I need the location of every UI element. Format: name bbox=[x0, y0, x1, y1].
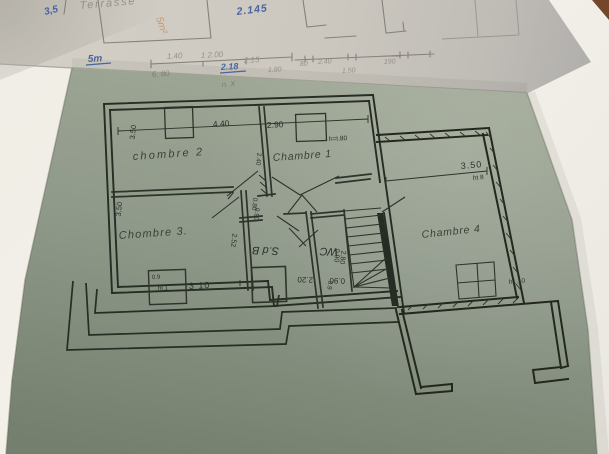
svg-text:80: 80 bbox=[300, 61, 308, 68]
svg-text:1.40: 1.40 bbox=[167, 51, 184, 61]
svg-text:190: 190 bbox=[384, 58, 396, 66]
svg-text:1 2.00: 1 2.00 bbox=[201, 50, 224, 60]
svg-text:ht 1: ht 1 bbox=[158, 285, 169, 292]
svg-text:6. 80: 6. 80 bbox=[152, 69, 171, 79]
svg-text:2.40: 2.40 bbox=[254, 152, 262, 166]
svg-text:3.50: 3.50 bbox=[128, 124, 138, 139]
svg-text:3.50: 3.50 bbox=[114, 201, 124, 216]
svg-text:2.20: 2.20 bbox=[297, 275, 313, 285]
svg-text:0.9: 0.9 bbox=[152, 275, 161, 281]
svg-text:S.d B: S.d B bbox=[252, 244, 279, 257]
svg-text:2.40: 2.40 bbox=[317, 58, 332, 66]
svg-text:0.9: 0.9 bbox=[325, 280, 333, 290]
svg-text:4.40: 4.40 bbox=[213, 118, 230, 129]
svg-text:2.80: 2.80 bbox=[338, 250, 346, 264]
svg-text:n. X: n. X bbox=[222, 79, 237, 89]
svg-text:h=t.80: h=t.80 bbox=[329, 135, 348, 143]
svg-text:2.90: 2.90 bbox=[267, 119, 284, 130]
svg-text:3 10: 3 10 bbox=[189, 280, 211, 291]
svg-text:2.15: 2.15 bbox=[243, 55, 261, 65]
svg-text:ht 8: ht 8 bbox=[473, 174, 485, 182]
svg-text:0.90: 0.90 bbox=[252, 207, 260, 221]
svg-text:h1.10: h1.10 bbox=[509, 278, 526, 286]
svg-text:3.50: 3.50 bbox=[460, 159, 482, 171]
